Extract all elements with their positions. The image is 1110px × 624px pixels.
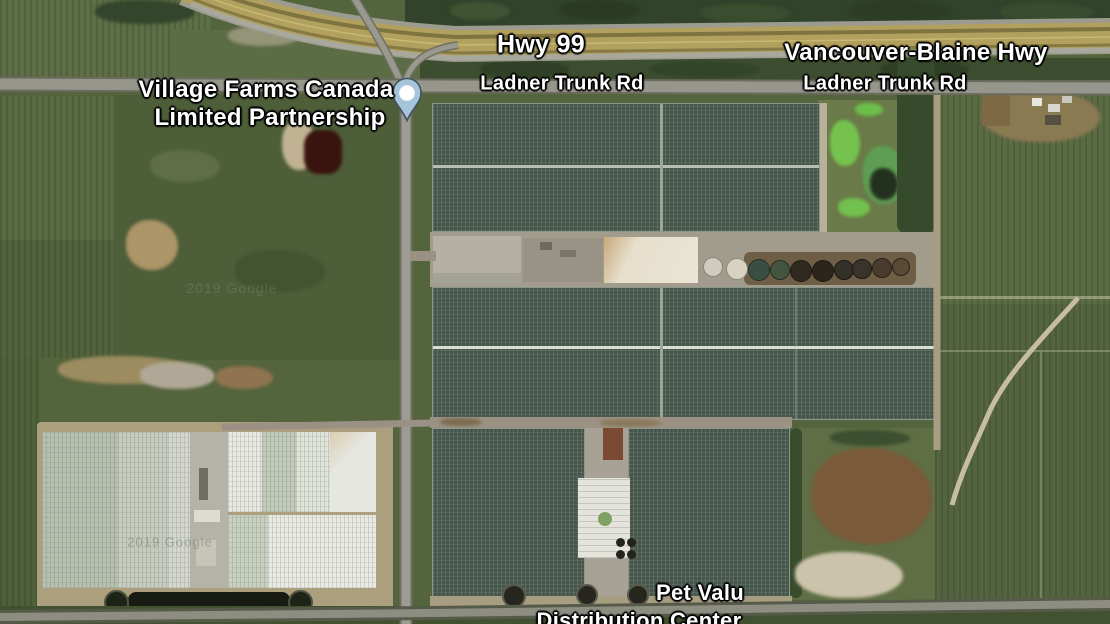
place-label-village-farms-line1[interactable]: Village Farms Canada: [139, 76, 394, 104]
road-label-ladner-trunk-east: Ladner Trunk Rd: [803, 73, 966, 96]
place-label-pet-valu-line1[interactable]: Pet Valu: [656, 580, 744, 606]
road-label-vancouver-blaine-hwy: Vancouver-Blaine Hwy: [784, 39, 1047, 67]
road-label-ladner-trunk-west: Ladner Trunk Rd: [480, 73, 643, 96]
east-lane: [937, 95, 1078, 505]
satellite-map[interactable]: Hwy 99 Vancouver-Blaine Hwy Ladner Trunk…: [0, 0, 1110, 624]
place-label-village-farms-line2[interactable]: Limited Partnership: [154, 104, 385, 132]
road-label-hwy-99: Hwy 99: [497, 31, 585, 60]
map-pin-village-farms[interactable]: [391, 77, 423, 123]
place-label-pet-valu-line2[interactable]: Distribution Center: [537, 608, 742, 624]
google-watermark: 2019 Google: [186, 280, 277, 296]
google-watermark: 2019 Google: [127, 535, 212, 550]
farm-access-road: [222, 90, 436, 624]
